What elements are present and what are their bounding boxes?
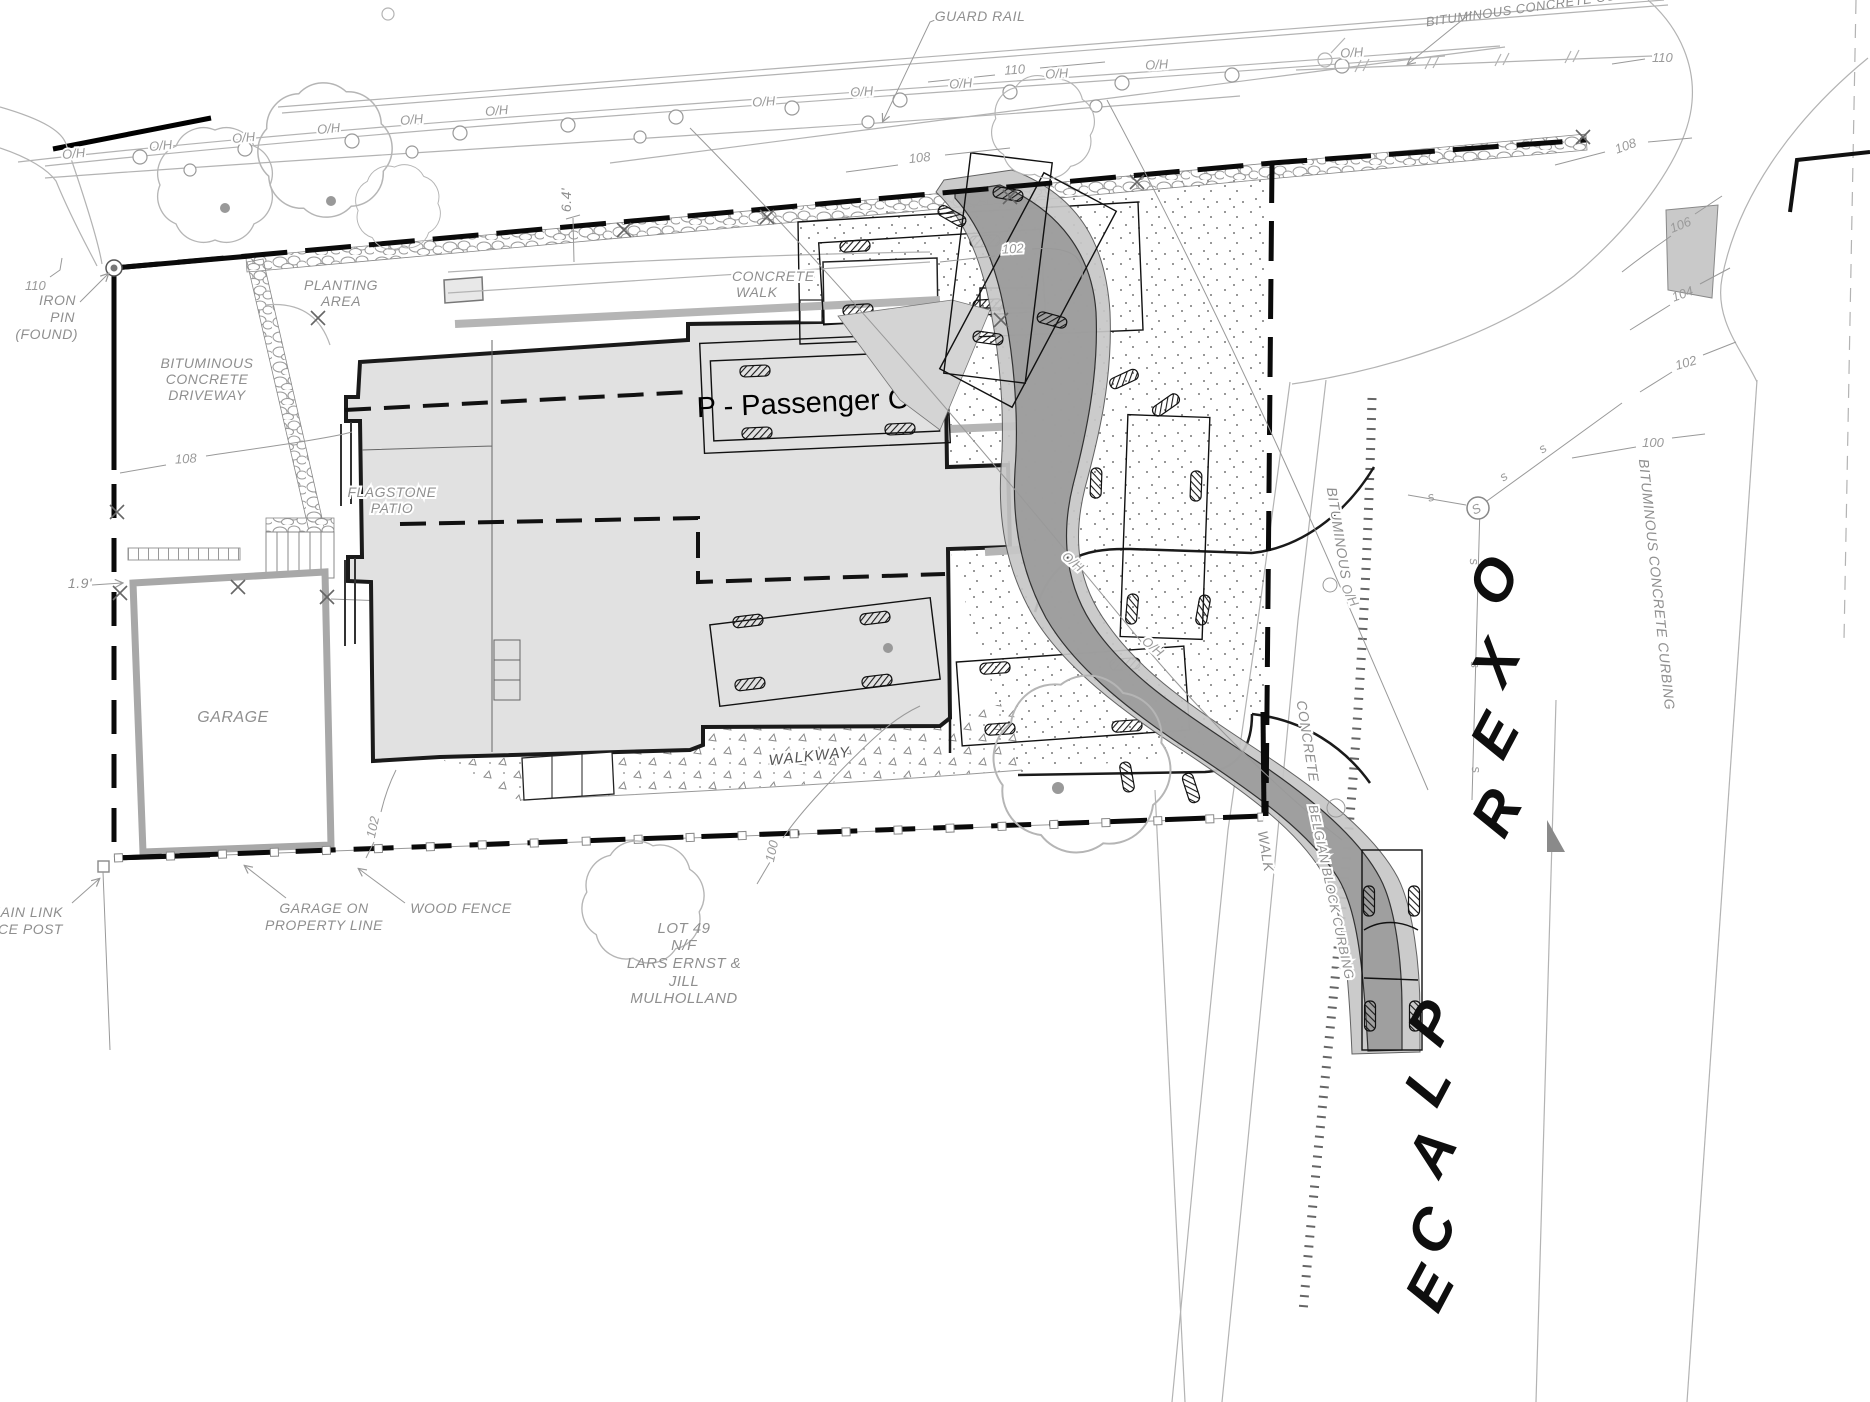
svg-text:O/H: O/H	[148, 137, 173, 154]
svg-text:PIN: PIN	[50, 309, 75, 325]
guard-rail-label: GUARD RAIL	[935, 8, 1026, 24]
chimney	[444, 277, 483, 303]
svg-text:GARAGE ON: GARAGE ON	[279, 900, 369, 916]
svg-text:O/H: O/H	[61, 145, 86, 162]
svg-text:N/F: N/F	[671, 937, 697, 954]
svg-text:FENCE POST: FENCE POST	[0, 921, 64, 937]
stoop	[522, 752, 614, 800]
svg-text:O/H: O/H	[484, 102, 509, 119]
garage-on-property-label: GARAGE ON PROPERTY LINE	[265, 900, 383, 933]
svg-text:DRIVEWAY: DRIVEWAY	[168, 387, 247, 403]
garage-label: GARAGE	[197, 709, 268, 726]
svg-text:O/H: O/H	[949, 75, 974, 92]
svg-text:O/H: O/H	[231, 129, 256, 146]
svg-text:(FOUND): (FOUND)	[15, 326, 78, 342]
svg-text:CONCRETE: CONCRETE	[732, 268, 815, 284]
svg-text:100: 100	[1642, 435, 1664, 450]
wood-fence-label: WOOD FENCE	[410, 900, 512, 916]
svg-text:108: 108	[175, 450, 198, 466]
site-plan-canvas: S s s s s s s P - P	[0, 0, 1870, 1402]
svg-text:LARS ERNST &: LARS ERNST &	[627, 955, 741, 972]
svg-text:AREA: AREA	[320, 293, 361, 309]
svg-text:110: 110	[25, 278, 46, 293]
tree-trunk-dot	[326, 196, 336, 206]
svg-text:FLAGSTONE: FLAGSTONE	[347, 484, 436, 500]
svg-text:JILL: JILL	[668, 973, 699, 990]
dim-1-9: 1.9'	[68, 575, 93, 591]
svg-text:LOT 49: LOT 49	[657, 920, 710, 937]
svg-text:110: 110	[1004, 61, 1026, 77]
svg-text:PROPERTY LINE: PROPERTY LINE	[265, 917, 383, 933]
svg-text:IRON: IRON	[39, 292, 76, 308]
svg-text:MULHOLLAND: MULHOLLAND	[630, 990, 738, 1007]
svg-text:WALK: WALK	[736, 284, 778, 300]
dim-6-4: 6.4'	[558, 187, 574, 212]
svg-text:BITUMINOUS: BITUMINOUS	[161, 355, 254, 371]
svg-text:108: 108	[908, 149, 932, 166]
svg-text:CHAIN LINK: CHAIN LINK	[0, 904, 63, 920]
driveway-label: BITUMINOUS CONCRETE DRIVEWAY	[161, 355, 254, 403]
svg-text:110: 110	[1652, 50, 1673, 65]
svg-text:PLANTING: PLANTING	[304, 277, 378, 293]
svg-text:PATIO: PATIO	[371, 500, 413, 516]
svg-text:O/H: O/H	[399, 111, 424, 128]
tree-trunk-dot	[883, 643, 893, 653]
svg-text:O/H: O/H	[850, 83, 875, 100]
svg-text:O/H: O/H	[752, 93, 777, 110]
chain-link-label: CHAIN LINK FENCE POST	[0, 904, 64, 937]
low-wall-ticks	[128, 548, 240, 560]
tree-trunk-dot	[220, 203, 230, 213]
tree-trunk-dot	[1052, 782, 1064, 794]
svg-text:O/H: O/H	[1340, 44, 1365, 61]
svg-text:CONCRETE: CONCRETE	[166, 371, 249, 387]
svg-text:O/H: O/H	[1145, 56, 1170, 73]
chain-link-post-icon	[98, 861, 109, 872]
svg-text:O/H: O/H	[316, 120, 341, 137]
svg-text:102: 102	[1002, 240, 1025, 256]
svg-text:O/H: O/H	[1045, 65, 1070, 82]
